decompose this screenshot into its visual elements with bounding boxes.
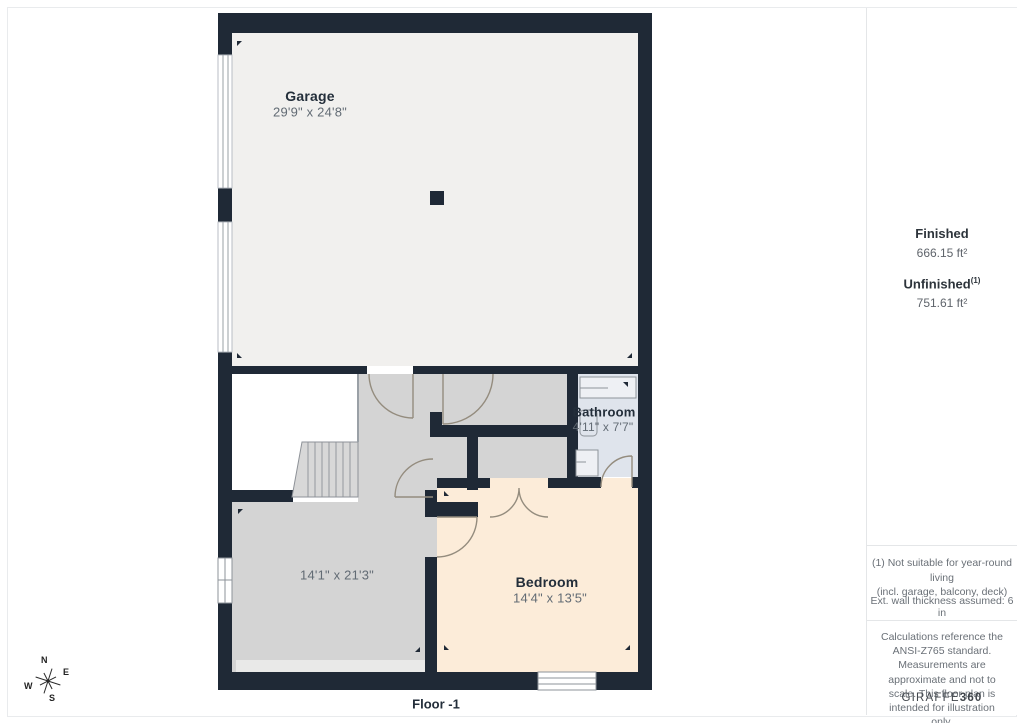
footnote: (1) Not suitable for year-round living (… xyxy=(867,556,1017,600)
shower xyxy=(576,450,598,476)
unfinished-superscript: (1) xyxy=(971,276,981,285)
wall-bathroom-bottom xyxy=(632,477,638,488)
footnote-line1: (1) Not suitable for year-round living xyxy=(867,556,1017,585)
garage-door-opening xyxy=(218,55,232,188)
sidebar-divider xyxy=(867,620,1017,621)
bathroom-label: Bathroom xyxy=(573,405,636,420)
stairs-outline xyxy=(292,442,358,497)
finished-value: 666.15 ft² xyxy=(867,246,1017,260)
compass-icon: N E W S xyxy=(14,646,90,710)
unfinished-text: Unfinished xyxy=(904,276,971,291)
wall-left-seg xyxy=(218,352,232,502)
wall-left-seg xyxy=(218,13,232,55)
wall-garage-bottom xyxy=(413,366,638,374)
brand-secondary: 360 xyxy=(960,692,983,704)
compass-w: W xyxy=(24,681,33,691)
garage-label: Garage xyxy=(285,88,334,104)
garage-column xyxy=(430,191,444,205)
wall-bedroom-top xyxy=(548,478,567,488)
info-sidebar: Finished 666.15 ft² Unfinished(1) 751.61… xyxy=(866,8,1017,715)
garage-door-opening xyxy=(218,222,232,352)
wall-bedroom-top xyxy=(437,478,490,488)
wall-closet-a xyxy=(440,425,567,437)
bedroom-label: Bedroom xyxy=(516,574,579,590)
brand-primary: GIRAFFE xyxy=(901,692,959,704)
floor-label: Floor -1 xyxy=(412,697,460,712)
compass-s: S xyxy=(49,693,55,703)
left-room-floor xyxy=(232,502,437,672)
wall-bedroom-left xyxy=(425,557,437,672)
wall-left-seg xyxy=(218,502,232,558)
wall-left-seg xyxy=(218,603,232,690)
wall-right xyxy=(638,13,652,690)
left-room-step xyxy=(236,660,430,672)
giraffe360-logo: GIRAFFE360 xyxy=(867,692,1017,704)
finished-label: Finished xyxy=(867,226,1017,241)
left-room-dims: 14'1" x 21'3" xyxy=(300,568,374,583)
bedroom-dims: 14'4" x 13'5" xyxy=(513,591,587,606)
wall-bathroom-bottom xyxy=(578,477,601,488)
sidebar-divider xyxy=(867,545,1017,546)
disclaimer-text: Calculations reference the ANSI-Z765 sta… xyxy=(867,630,1017,723)
wall-jog xyxy=(425,490,437,517)
bathroom-dims: 4'11" x 7'7" xyxy=(573,420,634,434)
wall-top xyxy=(218,13,652,33)
garage-dims: 29'9" x 24'8" xyxy=(273,105,347,120)
compass-n: N xyxy=(41,655,48,665)
area-stats: Finished 666.15 ft² Unfinished(1) 751.61… xyxy=(867,226,1017,326)
wall-storage-bottom xyxy=(232,490,293,502)
wall-garage-bottom xyxy=(232,366,367,374)
unfinished-label: Unfinished(1) xyxy=(867,276,1017,291)
wall-left-seg xyxy=(218,188,232,222)
window-bottom xyxy=(538,672,596,690)
unfinished-value: 751.61 ft² xyxy=(867,296,1017,310)
floorplan-page: Garage 29'9" x 24'8" Bathroom 4'11" x 7'… xyxy=(0,0,1024,723)
compass-e: E xyxy=(63,667,69,677)
wall-thickness-note: Ext. wall thickness assumed: 6 in xyxy=(867,595,1017,619)
wall-jog xyxy=(437,502,478,517)
